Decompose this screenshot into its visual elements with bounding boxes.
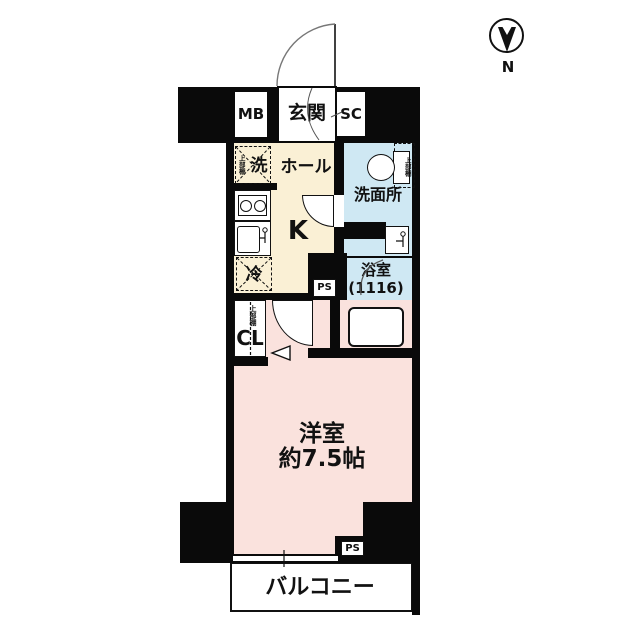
- wall-segment: [180, 502, 234, 563]
- bathtub-icon: [348, 307, 404, 347]
- label-washroom: 洗面所: [344, 186, 412, 204]
- label-fridge: 冷: [243, 264, 265, 286]
- label-kitchen: K: [283, 216, 313, 246]
- wall-segment: [226, 183, 277, 190]
- sink-icon: [237, 226, 260, 253]
- wall-segment: [344, 222, 386, 239]
- label-bathroom: 浴室: [342, 262, 410, 279]
- label-hall: ホール: [278, 157, 334, 177]
- label-shelf-toilet: 上部棚: [402, 150, 412, 184]
- bathroom-partition-line: [340, 256, 412, 258]
- label-shelf-washer: 上部棚: [236, 148, 246, 182]
- compass-icon: [489, 18, 524, 53]
- wall-segment: [226, 357, 268, 366]
- washbasin-icon: [385, 226, 409, 254]
- label-closet: CL: [235, 325, 265, 351]
- wall-segment: [308, 348, 418, 358]
- label-pipe-space-upper: PS: [313, 280, 336, 296]
- wall-segment: [330, 300, 340, 348]
- label-balcony: バルコニー: [245, 575, 395, 601]
- north-label: N: [498, 58, 518, 76]
- wall-segment: [334, 227, 344, 258]
- floor-plan: MB 玄関 SC ホール K 洗 上部棚 冷 洗面所 浴室 (1116) 上部棚…: [0, 0, 640, 639]
- label-meter-box: MB: [235, 103, 267, 125]
- wall-segment: [226, 293, 315, 300]
- toilet-icon: [367, 154, 395, 181]
- label-shoe-closet: SC: [337, 103, 365, 125]
- door-swing-icon: [277, 24, 335, 86]
- label-entrance: 玄関: [279, 101, 335, 125]
- burner-icon: [240, 200, 252, 212]
- burner-icon: [254, 200, 266, 212]
- label-main-room-size: 約7.5帖: [262, 447, 382, 472]
- label-main-room: 洋室: [262, 422, 382, 447]
- label-washer: 洗: [247, 155, 271, 177]
- window-icon: [233, 554, 338, 563]
- wall-segment: [334, 143, 344, 195]
- label-bathroom-size: (1116): [342, 280, 410, 297]
- wall-segment: [226, 143, 234, 563]
- label-pipe-space-lower: PS: [341, 541, 364, 556]
